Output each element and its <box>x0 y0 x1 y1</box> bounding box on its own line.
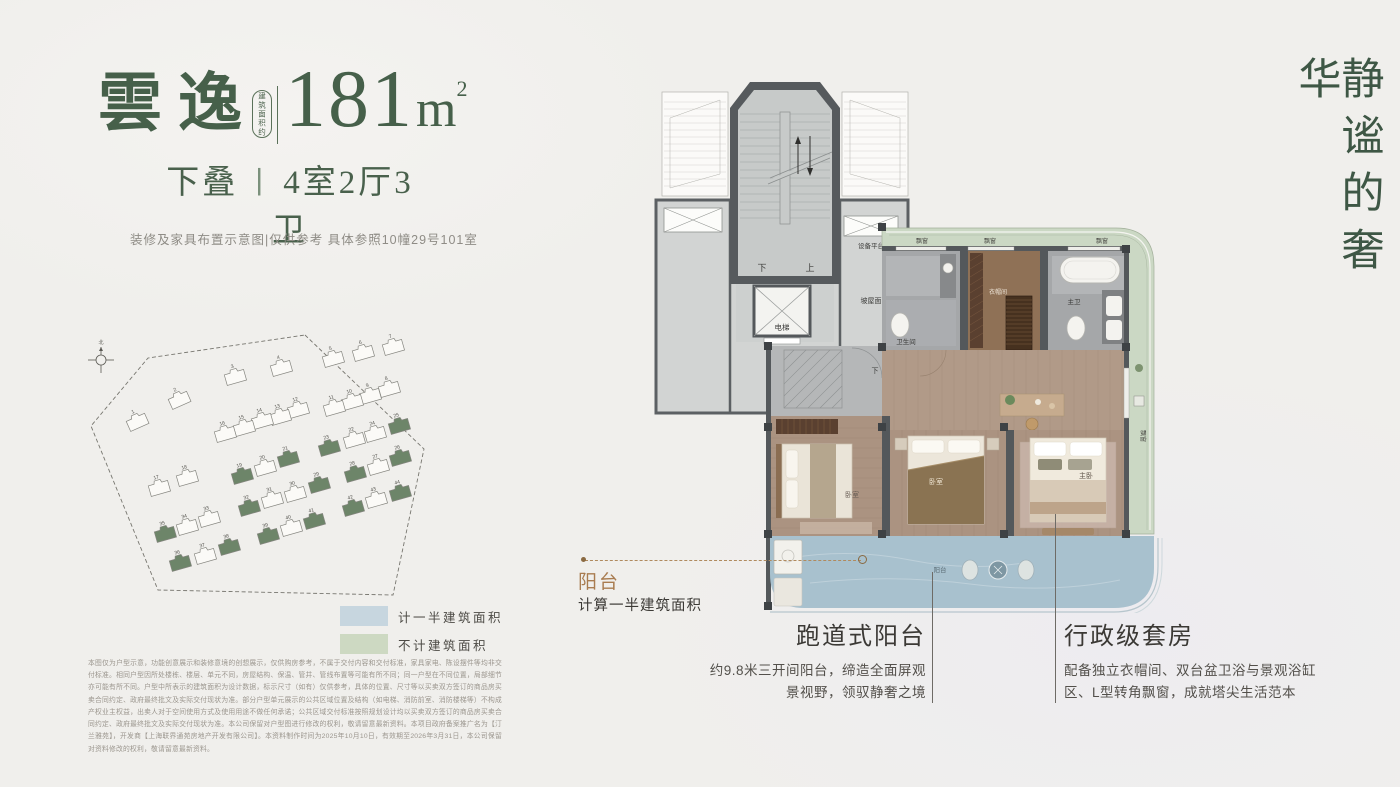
site-plan: 北 12345678910111213141516171819202122232… <box>85 332 485 622</box>
area-superscript: 2 <box>456 76 467 102</box>
svg-text:8: 8 <box>384 376 389 383</box>
feature-desc-line: 景视野，领驭静奢之境 <box>690 682 926 704</box>
site-plan-building: 40 <box>278 512 303 536</box>
floor-plan: 下 上 电梯 设备平台 坡屋面 下 <box>650 78 1180 613</box>
stair-down-label: 下 <box>757 263 766 273</box>
svg-text:2: 2 <box>173 387 178 394</box>
bench <box>1042 528 1094 535</box>
legend-swatch-green <box>340 634 388 654</box>
equipment-platform-label: 设备平台 <box>858 241 884 250</box>
site-plan-building: 19 <box>229 460 254 484</box>
cloakroom-label: 衣帽间 <box>989 288 1007 296</box>
feature2-leader-line <box>1055 514 1056 703</box>
site-plan-building: 29 <box>306 469 331 493</box>
north-wall <box>882 246 1128 251</box>
site-plan-building: 2 <box>165 384 191 410</box>
legend-item-half-area: 计一半建筑面积 <box>340 606 503 626</box>
balcony-chair <box>1018 560 1034 580</box>
svg-text:5: 5 <box>328 346 333 353</box>
site-plan-building: 32 <box>236 492 261 516</box>
hall-down-label: 下 <box>872 367 879 375</box>
bedroom-label: 卧室 <box>929 477 943 486</box>
wardrobe <box>776 419 838 434</box>
stool <box>1026 418 1038 430</box>
area-divider <box>277 86 278 144</box>
balcony-area: 阳台 <box>770 536 1162 613</box>
site-plan-building: 23 <box>316 432 341 456</box>
area-number: 181 <box>285 58 414 140</box>
site-plan-building: 43 <box>363 484 388 508</box>
leader-dot <box>581 557 586 562</box>
bedroom-1: 卧室 <box>770 416 882 536</box>
reference-note: 装修及家具布置示意图|仅供参考 具体参照10幢29号101室 <box>130 229 478 248</box>
elevator-label: 电梯 <box>775 322 790 332</box>
site-plan-building: 18 <box>174 462 199 486</box>
bathroom-label: 卫生间 <box>896 337 916 346</box>
feature1-leader-line <box>932 572 933 703</box>
site-plan-building: 1 <box>123 406 149 432</box>
area-unit: m <box>416 80 456 139</box>
svg-text:3: 3 <box>230 364 235 371</box>
master-bath-label: 主卫 <box>1068 297 1082 306</box>
site-plan-building: 28 <box>342 458 367 482</box>
stair-up-label: 上 <box>805 263 814 273</box>
wall <box>882 416 890 536</box>
site-plan-building: 41 <box>301 505 326 529</box>
site-plan-building: 17 <box>146 472 171 496</box>
site-plan-building: 20 <box>252 452 277 476</box>
feature-executive-suite: 行政级套房 配备独立衣帽间、双台盆卫浴与景观浴缸 区、L型转角飘窗，成就塔尖生活… <box>1064 616 1364 705</box>
site-plan-building: 38 <box>216 531 241 555</box>
disclaimer-text: 本图仅为户型示意，功能创意展示和装修意境的创想展示，仅供购房参考，不属于交付内容… <box>88 658 502 756</box>
legend-swatch-blue <box>340 606 388 626</box>
balcony-leader-dashed-line <box>585 560 861 561</box>
svg-text:1: 1 <box>131 409 136 416</box>
balcony-note-subtitle: 计算一半建筑面积 <box>578 594 702 615</box>
poster-page: 雲逸 建筑面积约 181 m 2 下叠丨4室2厅3卫 装修及家具布置示意图|仅供… <box>0 0 1400 787</box>
feature-title: 行政级套房 <box>1064 616 1364 651</box>
bay-window-label: 飘窗 <box>984 237 996 245</box>
site-plan-buildings: 1234567891011121314151617181920212223242… <box>123 332 412 571</box>
layout-type: 下叠 <box>166 165 238 201</box>
feature-desc-line: 约9.8米三开间阳台，缔造全面屏观 <box>690 660 926 682</box>
feature-title: 跑道式阳台 <box>690 616 926 651</box>
site-plan-building: 42 <box>340 492 365 516</box>
subtitle-separator: 丨 <box>238 167 283 200</box>
svg-text:6: 6 <box>358 340 363 347</box>
legend-item-no-area: 不计建筑面积 <box>340 634 488 654</box>
site-plan-building: 6 <box>350 337 375 361</box>
plant-icon <box>1135 364 1143 372</box>
roof-panel-left <box>662 92 728 196</box>
entry-hall: 下 <box>770 346 882 416</box>
site-plan-building: 44 <box>387 477 412 501</box>
svg-text:9: 9 <box>365 383 370 390</box>
site-plan-building: 39 <box>255 520 280 544</box>
site-plan-building: 24 <box>362 418 387 442</box>
site-plan-building: 25 <box>386 410 411 434</box>
site-plan-building: 34 <box>174 511 199 535</box>
feature-desc-line: 配备独立衣帽间、双台盆卫浴与景观浴缸 <box>1064 660 1364 682</box>
stair-core: 下 上 <box>730 82 840 284</box>
feature-desc-line: 区、L型转角飘窗，成就塔尖生活范本 <box>1064 682 1364 704</box>
vertical-tagline: 静谧的奢华 <box>1294 56 1380 336</box>
master-bedroom: 主卧 <box>1014 430 1128 536</box>
site-plan-building: 30 <box>282 478 307 502</box>
site-plan-building: 11 <box>321 392 346 416</box>
bathroom: 卫生间 <box>882 251 968 350</box>
master-bathroom: 主卫 <box>1048 251 1128 350</box>
bay-window-label: 飘窗 <box>1139 430 1147 442</box>
legend-label: 计一半建筑面积 <box>398 607 503 626</box>
master-bedroom-label: 主卧 <box>1079 471 1093 480</box>
compass-north-label: 北 <box>98 339 103 346</box>
site-plan-building: 4 <box>268 352 293 376</box>
compass-icon: 北 <box>88 339 114 373</box>
cloakroom: 衣帽间 <box>968 251 1048 350</box>
site-plan-building: 33 <box>196 503 221 527</box>
area-prefix-label: 建筑面积约 <box>257 92 268 137</box>
bay-window-label: 飘窗 <box>1096 237 1108 245</box>
site-plan-building: 37 <box>192 540 217 564</box>
bay-window-label: 飘窗 <box>916 237 928 245</box>
balcony-label: 阳台 <box>934 565 947 574</box>
hallway <box>882 350 1128 430</box>
site-plan-building: 21 <box>275 443 300 467</box>
bedroom-2: 卧室 <box>890 430 1006 536</box>
site-plan-building: 7 <box>380 332 405 355</box>
area-prefix-pill: 建筑面积约 <box>252 90 272 138</box>
elevator: 电梯 <box>736 284 834 344</box>
site-plan-building: 22 <box>341 424 366 448</box>
legend-label: 不计建筑面积 <box>398 635 488 654</box>
balcony-note-title: 阳台 <box>578 567 620 594</box>
site-plan-building: 27 <box>365 451 390 475</box>
site-plan-building: 3 <box>222 361 247 385</box>
brand-title: 雲逸 <box>98 72 258 136</box>
site-plan-building: 36 <box>167 547 192 571</box>
bedroom-label: 卧室 <box>845 490 859 499</box>
slope-roof-label: 坡屋面 <box>861 296 882 305</box>
site-plan-building: 16 <box>212 418 237 442</box>
site-plan-building: 26 <box>387 442 412 466</box>
wall <box>1006 430 1014 536</box>
site-plan-building: 5 <box>320 343 345 367</box>
balcony-chair <box>962 560 978 580</box>
roof-panel-right <box>842 92 908 196</box>
svg-text:7: 7 <box>388 334 393 341</box>
area-value: 181 m 2 <box>285 58 467 140</box>
site-plan-building: 35 <box>152 518 177 542</box>
feature-runway-balcony: 跑道式阳台 约9.8米三开间阳台，缔造全面屏观 景视野，领驭静奢之境 <box>690 616 926 705</box>
leader-ring <box>858 555 867 564</box>
svg-text:4: 4 <box>276 355 281 362</box>
site-plan-building: 31 <box>259 484 284 508</box>
